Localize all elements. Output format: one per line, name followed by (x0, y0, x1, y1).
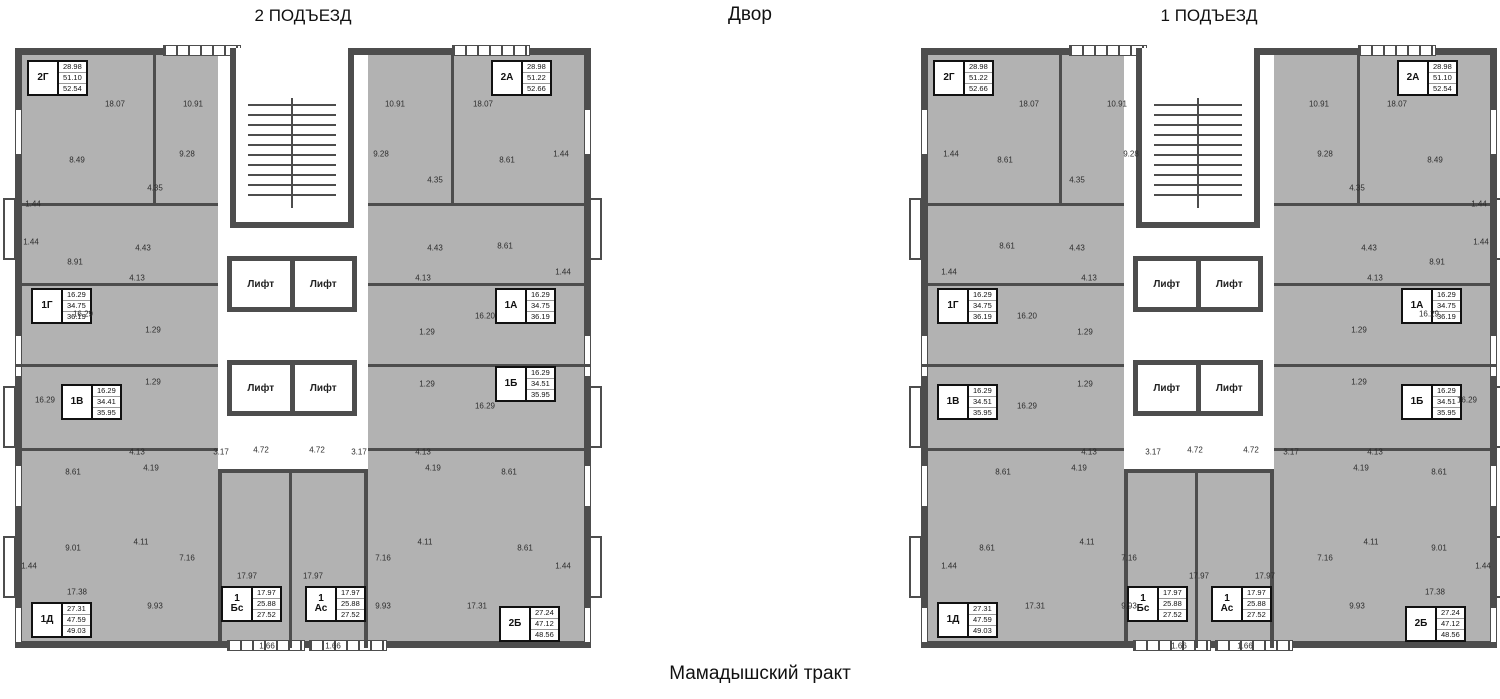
room-area-label: 8.49 (69, 156, 85, 165)
apartment-type-text: 2А (1407, 73, 1420, 83)
balcony-strip (452, 45, 530, 56)
apartment-type-text: 1Г (947, 301, 958, 311)
room-area-label: 9.93 (1349, 602, 1365, 611)
apartment-area-value: 27.52 (253, 609, 280, 620)
apartment-box: 1Г16.2934.7536.19 (31, 288, 92, 324)
room-area-label: 1.29 (1351, 326, 1367, 335)
balcony (589, 386, 602, 448)
room-area-label: 16.20 (475, 312, 495, 321)
room-area-label: 9.93 (147, 602, 163, 611)
room-area-label: 1.66 (259, 642, 275, 651)
apartment-type-label: 2Б (1407, 608, 1437, 640)
lift-label: Лифт (1216, 383, 1243, 394)
window-gap (16, 608, 21, 642)
apartment-type-label: 1Б (497, 368, 527, 400)
apartment-area-value: 52.66 (965, 83, 992, 94)
apartment-area-value: 16.29 (1433, 386, 1460, 396)
apartment-box: 1А16.2934.7536.19 (495, 288, 556, 324)
room-area-label: 7.16 (1317, 554, 1333, 563)
window-gap (585, 608, 590, 642)
room-area-label: 1.44 (941, 268, 957, 277)
apartment-area-value: 17.97 (337, 588, 364, 598)
apartment-area-value: 51.22 (965, 72, 992, 83)
stair-stringer (291, 98, 293, 208)
apartment-area-value: 52.54 (59, 83, 86, 94)
room-area-label: 1.29 (145, 326, 161, 335)
building-entrance-2: ЛифтЛифтЛифтЛифт2Г28.9851.1052.542А28.98… (15, 48, 591, 648)
apartment-type-text: 1Д (41, 615, 54, 625)
apartment-box: 1Ас17.9725.8827.52 (305, 586, 366, 622)
apartment-box: 2А28.9851.1052.54 (1397, 60, 1458, 96)
apartment-type-label: 1Бс (223, 588, 253, 620)
apartment-box: 1Ас17.9725.8827.52 (1211, 586, 1272, 622)
apartment-type-label: 1Д (33, 604, 63, 636)
apartment-type-text: 1Г (41, 301, 52, 311)
apartment-area-value: 27.24 (1437, 608, 1464, 618)
room-area-label: 18.07 (105, 100, 125, 109)
room-area-label: 3.17 (213, 448, 229, 457)
window-gap (922, 336, 927, 376)
apartment-area-value: 27.31 (969, 604, 996, 614)
apartment-type-label: 2Г (29, 62, 59, 94)
window-gap (585, 110, 590, 154)
room-area-label: 8.49 (1427, 156, 1443, 165)
apartment-box: 1В16.2934.5135.95 (937, 384, 998, 420)
apartment-area-value: 34.51 (969, 396, 996, 407)
lift-cell: Лифт (1196, 365, 1259, 411)
room-area-label: 17.97 (1189, 572, 1209, 581)
apartment-type-label: 1В (63, 386, 93, 418)
room-area-label: 16.29 (1419, 310, 1439, 319)
room-area-label: 17.97 (237, 572, 257, 581)
interior-wall (1274, 283, 1497, 286)
stair-stringer (1197, 98, 1199, 208)
apartment-type-label: 1Г (939, 290, 969, 322)
room-area-label: 3.17 (1145, 448, 1161, 457)
apartment-box: 1А16.2934.7536.19 (1401, 288, 1462, 324)
lift-cell: Лифт (232, 261, 290, 307)
room-area-label: 4.35 (427, 176, 443, 185)
room-area-label: 16.20 (1017, 312, 1037, 321)
apartment-box: 2Б27.2447.1248.56 (1405, 606, 1466, 642)
interior-wall (1124, 469, 1274, 473)
room-area-label: 1.44 (941, 562, 957, 571)
apartment-box: 1Г16.2934.7536.19 (937, 288, 998, 324)
room-area-label: 4.43 (427, 244, 443, 253)
apartment-areas: 27.3147.5949.03 (63, 604, 90, 636)
room-area-label: 1.44 (25, 200, 41, 209)
apartment-type-text: 1А (505, 301, 518, 311)
room-area-label: 17.38 (67, 588, 87, 597)
apartment-type-text-2: Ас (315, 604, 328, 614)
room-area-label: 16.29 (35, 396, 55, 405)
window-gap (16, 336, 21, 376)
apartment-area-value: 49.03 (63, 625, 90, 636)
interior-wall (921, 364, 1124, 367)
room-area-label: 4.72 (1187, 446, 1203, 455)
apartment-type-text: 1В (947, 397, 960, 407)
apartment-type-label: 2Б (501, 608, 531, 640)
apartment-areas: 27.2447.1248.56 (1437, 608, 1464, 640)
room-area-label: 9.01 (1431, 544, 1447, 553)
room-area-label: 1.29 (145, 378, 161, 387)
apartment-area-value: 34.51 (527, 378, 554, 389)
lift-cell: Лифт (1138, 365, 1196, 411)
apartment-box: 1Б16.2934.5135.95 (495, 366, 556, 402)
room-area-label: 1.66 (1171, 642, 1187, 651)
apartment-area-value: 36.19 (969, 311, 996, 322)
room-area-label: 1.44 (23, 238, 39, 247)
room-area-label: 1.29 (1351, 378, 1367, 387)
interior-wall (15, 364, 218, 367)
room-area-label: 17.97 (1255, 572, 1275, 581)
room-area-label: 1.44 (943, 150, 959, 159)
apartment-area-value: 28.98 (59, 62, 86, 72)
apartment-area-value: 47.59 (63, 614, 90, 625)
balcony (909, 386, 922, 448)
apartment-area-value: 27.31 (63, 604, 90, 614)
room-area-label: 10.91 (1107, 100, 1127, 109)
apartment-area-value: 48.56 (531, 629, 558, 640)
window-gap (1491, 608, 1496, 642)
apartment-type-text-2: Бс (1137, 604, 1150, 614)
apartment-area-value: 51.10 (1429, 72, 1456, 83)
room-area-label: 4.13 (415, 274, 431, 283)
interior-wall (1274, 203, 1497, 206)
apartment-area-value: 52.66 (523, 83, 550, 94)
room-area-label: 10.91 (1309, 100, 1329, 109)
window-gap (922, 466, 927, 506)
apartment-type-label: 1Ас (1213, 588, 1243, 620)
apartment-type-text: 1В (71, 397, 84, 407)
apartment-box: 1Д27.3147.5949.03 (31, 602, 92, 638)
room-area-label: 4.13 (129, 274, 145, 283)
room-area-label: 8.61 (499, 156, 515, 165)
apartment-area-value: 28.98 (965, 62, 992, 72)
lift-cell: Лифт (1138, 261, 1196, 307)
room-area-label: 1.44 (1475, 562, 1491, 571)
room-area-label: 1.44 (1471, 200, 1487, 209)
lift-label: Лифт (247, 279, 274, 290)
room-area-label: 8.61 (995, 468, 1011, 477)
apartment-box: 1В16.2934.4135.95 (61, 384, 122, 420)
apartment-type-text: 2Б (1415, 619, 1428, 629)
room-area-label: 16.29 (1457, 396, 1477, 405)
room-area-label: 8.61 (65, 468, 81, 477)
apartment-area-value: 16.29 (527, 290, 554, 300)
room-area-label: 17.31 (467, 602, 487, 611)
room-area-label: 1.29 (419, 328, 435, 337)
lift-label: Лифт (1153, 279, 1180, 290)
apartment-area-value: 51.10 (59, 72, 86, 83)
window-gap (16, 466, 21, 506)
room-area-label: 18.07 (473, 100, 493, 109)
window-gap (16, 110, 21, 154)
room-area-label: 7.16 (179, 554, 195, 563)
apartment-area-value: 34.51 (1433, 396, 1460, 407)
balcony-strip (309, 640, 387, 651)
room-area-label: 4.11 (134, 538, 149, 547)
apartment-areas: 28.9851.1052.54 (1429, 62, 1456, 94)
apartment-area-value: 47.59 (969, 614, 996, 625)
room-area-label: 4.35 (147, 184, 163, 193)
apartment-area-value: 17.97 (1243, 588, 1270, 598)
room-area-label: 8.61 (997, 156, 1013, 165)
interior-wall (1274, 364, 1497, 367)
apartment-areas: 16.2934.5135.95 (1433, 386, 1460, 418)
lift-block: ЛифтЛифт (1133, 256, 1263, 312)
apartment-area-value: 35.95 (93, 407, 120, 418)
apartment-area-value: 36.19 (527, 311, 554, 322)
room-area-label: 16.29 (73, 310, 93, 319)
window-gap (1491, 336, 1496, 376)
apartment-area-value: 16.29 (63, 290, 90, 300)
room-area-label: 4.13 (1081, 274, 1097, 283)
apartment-areas: 28.9851.1052.54 (59, 62, 86, 94)
apartment-areas: 16.2934.7536.19 (527, 290, 554, 322)
apartment-type-label: 2Г (935, 62, 965, 94)
balcony-strip (1358, 45, 1436, 56)
lift-block: ЛифтЛифт (227, 256, 357, 312)
room-area-label: 4.43 (1361, 244, 1377, 253)
apartment-areas: 28.9851.2252.66 (523, 62, 550, 94)
room-area-label: 4.11 (1080, 538, 1095, 547)
room-area-label: 10.91 (183, 100, 203, 109)
interior-wall (368, 283, 591, 286)
room-area-label: 1.29 (1077, 328, 1093, 337)
window-gap (585, 336, 590, 376)
apartment-areas: 27.3147.5949.03 (969, 604, 996, 636)
apartment-area-value: 25.88 (1159, 598, 1186, 609)
room-area-label: 4.72 (309, 446, 325, 455)
apartment-area-value: 27.52 (337, 609, 364, 620)
room-area-label: 4.19 (143, 464, 159, 473)
apartment-box: 2Г28.9851.1052.54 (27, 60, 88, 96)
apartment-type-label: 1А (497, 290, 527, 322)
interior-wall (1059, 55, 1062, 203)
apartment-box: 1Д27.3147.5949.03 (937, 602, 998, 638)
window-gap (1491, 110, 1496, 154)
building-entrance-1: ЛифтЛифтЛифтЛифт2Г28.9851.2252.662А28.98… (921, 48, 1497, 648)
interior-wall (15, 283, 218, 286)
balcony (909, 536, 922, 598)
balcony (3, 386, 16, 448)
room-area-label: 8.91 (67, 258, 83, 267)
apartment-area-value: 52.54 (1429, 83, 1456, 94)
lift-label: Лифт (310, 279, 337, 290)
room-area-label: 9.01 (65, 544, 81, 553)
stairwell (1136, 48, 1260, 228)
apartment-area-value: 47.12 (531, 618, 558, 629)
room-area-label: 9.93 (1121, 602, 1137, 611)
room-area-label: 4.35 (1069, 176, 1085, 185)
apartment-area-value: 35.95 (527, 389, 554, 400)
interior-wall (15, 203, 218, 206)
apartment-type-text-2: Ас (1221, 604, 1234, 614)
apartment-type-label: 1Д (939, 604, 969, 636)
window-gap (922, 608, 927, 642)
interior-wall (368, 203, 591, 206)
window-gap (585, 466, 590, 506)
apartment-area-value: 28.98 (1429, 62, 1456, 72)
apartment-area-value: 16.29 (969, 290, 996, 300)
interior-wall (1357, 55, 1360, 203)
interior-wall (451, 55, 454, 203)
apartment-areas: 16.2934.4135.95 (93, 386, 120, 418)
apartment-areas: 28.9851.2252.66 (965, 62, 992, 94)
apartment-areas: 16.2934.7536.19 (969, 290, 996, 322)
apartment-areas: 16.2934.5135.95 (527, 368, 554, 400)
room-area-label: 1.66 (1237, 642, 1253, 651)
balcony (1495, 198, 1500, 260)
lift-cell: Лифт (1196, 261, 1259, 307)
courtyard-label: Двор (650, 4, 850, 26)
room-area-label: 4.72 (1243, 446, 1259, 455)
room-area-label: 1.66 (325, 642, 341, 651)
room-area-label: 17.97 (303, 572, 323, 581)
balcony (909, 198, 922, 260)
room-area-label: 8.61 (517, 544, 533, 553)
lift-label: Лифт (310, 383, 337, 394)
lift-block: ЛифтЛифт (1133, 360, 1263, 416)
street-label: Мамадышский тракт (590, 663, 930, 685)
room-area-label: 16.29 (1017, 402, 1037, 411)
apartment-type-text: 2Г (37, 73, 48, 83)
apartment-type-text: 1Б (505, 379, 518, 389)
apartment-area-value: 34.75 (969, 300, 996, 311)
apartment-areas: 17.9725.8827.52 (253, 588, 280, 620)
apartment-area-value: 51.22 (523, 72, 550, 83)
apartment-area-value: 16.29 (527, 368, 554, 378)
apartment-area-value: 35.95 (1433, 407, 1460, 418)
lift-label: Лифт (1153, 383, 1180, 394)
lift-cell: Лифт (290, 365, 353, 411)
room-area-label: 9.93 (375, 602, 391, 611)
interior-wall (921, 283, 1124, 286)
apartment-area-value: 25.88 (337, 598, 364, 609)
apartment-area-value: 25.88 (253, 598, 280, 609)
room-area-label: 9.28 (179, 150, 195, 159)
entrance-1-title: 1 ПОДЪЕЗД (921, 6, 1497, 26)
lift-label: Лифт (247, 383, 274, 394)
window-gap (922, 110, 927, 154)
room-area-label: 7.16 (375, 554, 391, 563)
apartment-type-label: 1Б (1403, 386, 1433, 418)
apartment-box: 2А28.9851.2252.66 (491, 60, 552, 96)
room-area-label: 18.07 (1387, 100, 1407, 109)
interior-wall (1274, 448, 1497, 451)
apartment-area-value: 27.24 (531, 608, 558, 618)
room-area-label: 4.13 (1367, 274, 1383, 283)
room-area-label: 4.43 (1069, 244, 1085, 253)
apartment-area-value: 27.52 (1243, 609, 1270, 620)
room-area-label: 1.29 (419, 380, 435, 389)
apartment-area-value: 34.41 (93, 396, 120, 407)
room-area-label: 8.61 (979, 544, 995, 553)
balcony (1495, 536, 1500, 598)
room-area-label: 1.29 (1077, 380, 1093, 389)
room-area-label: 8.61 (497, 242, 513, 251)
entrance-2-title: 2 ПОДЪЕЗД (15, 6, 591, 26)
room-area-label: 9.28 (1123, 150, 1139, 159)
apartment-area-value: 34.75 (527, 300, 554, 311)
apartment-type-text-2: Бс (231, 604, 244, 614)
apartment-areas: 17.9725.8827.52 (1159, 588, 1186, 620)
room-area-label: 3.17 (351, 448, 367, 457)
room-area-label: 4.13 (1367, 448, 1383, 457)
apartment-box: 1Бс17.9725.8827.52 (221, 586, 282, 622)
room-area-label: 4.43 (135, 244, 151, 253)
apartment-type-label: 1Г (33, 290, 63, 322)
room-area-label: 8.91 (1429, 258, 1445, 267)
apartment-area-value: 16.29 (1433, 290, 1460, 300)
interior-wall (153, 55, 156, 203)
interior-wall (15, 448, 218, 451)
apartment-type-text: 2А (501, 73, 514, 83)
room-area-label: 18.07 (1019, 100, 1039, 109)
apartment-area-value: 35.95 (969, 407, 996, 418)
room-area-label: 9.28 (1317, 150, 1333, 159)
apartment-box: 1Б16.2934.5135.95 (1401, 384, 1462, 420)
balcony (1495, 386, 1500, 448)
room-area-label: 16.29 (475, 402, 495, 411)
apartment-area-value: 47.12 (1437, 618, 1464, 629)
room-area-label: 4.19 (1071, 464, 1087, 473)
room-area-label: 4.13 (129, 448, 145, 457)
apartment-area-value: 16.29 (93, 386, 120, 396)
room-area-label: 1.44 (1473, 238, 1489, 247)
room-area-label: 4.11 (1364, 538, 1379, 547)
interior-wall (921, 203, 1124, 206)
lift-label: Лифт (1216, 279, 1243, 290)
room-area-label: 4.72 (253, 446, 269, 455)
lift-block: ЛифтЛифт (227, 360, 357, 416)
balcony (589, 198, 602, 260)
apartment-area-value: 17.97 (1159, 588, 1186, 598)
room-area-label: 7.16 (1121, 554, 1137, 563)
apartment-area-value: 16.29 (969, 386, 996, 396)
apartment-areas: 27.2447.1248.56 (531, 608, 558, 640)
balcony (3, 198, 16, 260)
room-area-label: 4.19 (425, 464, 441, 473)
interior-wall (368, 364, 591, 367)
interior-wall (1195, 471, 1198, 648)
apartment-type-text: 2Г (943, 73, 954, 83)
lift-cell: Лифт (232, 365, 290, 411)
apartment-type-label: 1В (939, 386, 969, 418)
room-area-label: 8.61 (999, 242, 1015, 251)
balcony (589, 536, 602, 598)
apartment-area-value: 27.52 (1159, 609, 1186, 620)
room-area-label: 1.44 (555, 268, 571, 277)
interior-wall (218, 469, 368, 473)
balcony (3, 536, 16, 598)
apartment-type-text: 1Д (947, 615, 960, 625)
apartment-areas: 16.2934.5135.95 (969, 386, 996, 418)
apartment-area-value: 28.98 (523, 62, 550, 72)
interior-wall (289, 471, 292, 648)
apartment-area-value: 25.88 (1243, 598, 1270, 609)
room-area-label: 17.31 (1025, 602, 1045, 611)
room-area-label: 1.44 (555, 562, 571, 571)
apartment-area-value: 49.03 (969, 625, 996, 636)
apartment-areas: 17.9725.8827.52 (1243, 588, 1270, 620)
room-area-label: 17.38 (1425, 588, 1445, 597)
balcony-strip (1215, 640, 1293, 651)
room-area-label: 4.35 (1349, 184, 1365, 193)
room-area-label: 1.44 (21, 562, 37, 571)
room-area-label: 9.28 (373, 150, 389, 159)
